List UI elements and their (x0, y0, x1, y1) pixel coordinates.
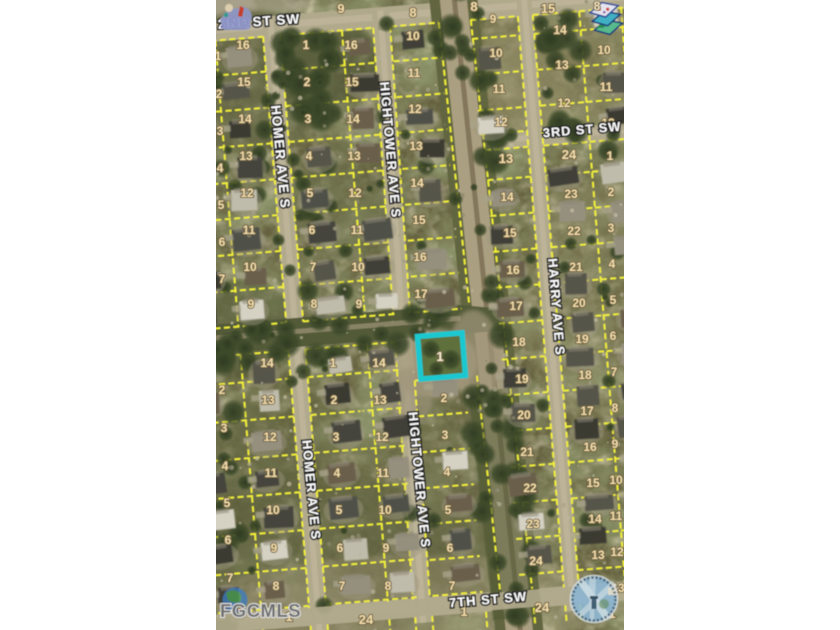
svg-text:11: 11 (377, 466, 390, 480)
svg-text:6: 6 (219, 235, 226, 249)
svg-text:8: 8 (273, 579, 280, 593)
svg-text:9: 9 (612, 437, 619, 451)
svg-text:24: 24 (529, 554, 543, 568)
svg-text:14: 14 (410, 176, 424, 190)
svg-text:3: 3 (217, 124, 224, 138)
svg-text:16: 16 (344, 38, 358, 52)
svg-text:1: 1 (607, 149, 614, 163)
svg-text:1: 1 (330, 356, 337, 370)
svg-text:12: 12 (263, 430, 277, 444)
svg-text:24: 24 (535, 600, 550, 615)
svg-text:9: 9 (383, 541, 390, 555)
svg-text:13: 13 (499, 151, 513, 166)
svg-text:10: 10 (597, 43, 611, 57)
svg-text:11: 11 (600, 80, 613, 94)
svg-text:8: 8 (594, 0, 601, 13)
svg-text:9: 9 (337, 1, 344, 16)
svg-text:7: 7 (227, 571, 234, 585)
svg-text:2: 2 (608, 185, 615, 199)
svg-text:17: 17 (509, 299, 523, 313)
svg-text:12: 12 (408, 102, 422, 116)
svg-text:5: 5 (307, 186, 314, 200)
svg-text:5: 5 (445, 503, 452, 517)
svg-text:15: 15 (237, 75, 251, 89)
svg-text:7: 7 (339, 579, 346, 593)
svg-text:11: 11 (493, 82, 506, 96)
svg-text:22: 22 (567, 224, 581, 238)
svg-text:3: 3 (305, 112, 312, 126)
svg-text:2: 2 (331, 393, 338, 407)
svg-text:12: 12 (375, 430, 389, 444)
svg-text:15: 15 (586, 476, 600, 490)
svg-text:13: 13 (591, 548, 605, 562)
svg-text:6: 6 (309, 223, 316, 237)
svg-text:8: 8 (409, 5, 416, 20)
svg-text:5: 5 (336, 503, 343, 517)
svg-text:17: 17 (580, 404, 594, 418)
svg-text:14: 14 (500, 190, 514, 204)
svg-text:21: 21 (520, 445, 534, 459)
svg-text:7: 7 (611, 365, 618, 379)
svg-text:FGCMLS: FGCMLS (220, 600, 301, 621)
svg-text:4: 4 (217, 161, 224, 175)
svg-text:16: 16 (413, 250, 427, 264)
svg-text:2: 2 (441, 391, 448, 405)
svg-text:13: 13 (373, 393, 387, 407)
svg-text:19: 19 (575, 332, 589, 346)
svg-text:8: 8 (311, 297, 318, 311)
svg-text:10: 10 (489, 46, 503, 60)
svg-text:10: 10 (351, 260, 365, 274)
svg-text:11: 11 (351, 223, 364, 237)
svg-text:12: 12 (240, 186, 254, 200)
svg-text:18: 18 (512, 335, 526, 349)
svg-text:14: 14 (553, 23, 567, 37)
svg-text:20: 20 (572, 296, 586, 310)
svg-text:11: 11 (243, 223, 256, 237)
svg-text:17: 17 (414, 287, 428, 301)
svg-text:13: 13 (239, 149, 253, 163)
svg-text:13: 13 (555, 58, 569, 72)
svg-text:15: 15 (412, 213, 426, 227)
svg-text:22: 22 (523, 481, 537, 495)
svg-text:2: 2 (304, 75, 311, 89)
svg-text:14: 14 (238, 112, 252, 126)
svg-text:1: 1 (436, 349, 443, 364)
svg-text:12: 12 (348, 186, 362, 200)
svg-text:24: 24 (359, 612, 374, 627)
svg-text:1: 1 (303, 38, 310, 52)
svg-text:6: 6 (610, 329, 617, 343)
svg-text:18: 18 (578, 368, 592, 382)
svg-text:16: 16 (506, 263, 520, 277)
svg-text:13: 13 (409, 139, 423, 153)
svg-text:3: 3 (221, 421, 228, 435)
svg-text:6: 6 (337, 541, 344, 555)
svg-text:13: 13 (261, 393, 275, 407)
svg-text:10: 10 (243, 260, 257, 274)
svg-text:10: 10 (378, 503, 392, 517)
svg-text:4: 4 (609, 257, 616, 271)
svg-text:14: 14 (372, 356, 386, 370)
svg-text:12: 12 (610, 545, 624, 559)
svg-text:21: 21 (569, 260, 583, 274)
svg-text:9: 9 (271, 541, 278, 555)
svg-text:20: 20 (517, 408, 531, 422)
svg-text:11: 11 (408, 66, 421, 80)
svg-text:2: 2 (219, 383, 226, 397)
svg-text:23: 23 (526, 517, 540, 531)
svg-text:12: 12 (557, 96, 571, 110)
svg-text:8: 8 (385, 579, 392, 593)
svg-text:7: 7 (449, 579, 456, 593)
svg-text:7: 7 (310, 260, 317, 274)
svg-text:4: 4 (222, 459, 229, 473)
svg-text:23: 23 (564, 187, 578, 201)
svg-text:4: 4 (334, 466, 341, 480)
svg-text:3: 3 (442, 428, 449, 442)
svg-text:15: 15 (503, 226, 517, 240)
svg-text:6: 6 (447, 541, 454, 555)
svg-text:2: 2 (216, 87, 223, 101)
svg-text:8: 8 (612, 401, 619, 415)
svg-text:9: 9 (248, 297, 255, 311)
svg-text:14: 14 (588, 512, 602, 526)
svg-text:10: 10 (406, 29, 420, 43)
svg-text:15: 15 (345, 75, 359, 89)
svg-text:13: 13 (347, 149, 361, 163)
svg-text:11: 11 (265, 466, 278, 480)
svg-text:11: 11 (610, 509, 623, 523)
svg-text:5: 5 (224, 496, 231, 510)
svg-text:5: 5 (218, 198, 225, 212)
svg-text:16: 16 (583, 440, 597, 454)
svg-text:4: 4 (306, 149, 313, 163)
svg-text:19: 19 (515, 372, 529, 386)
svg-text:14: 14 (260, 356, 274, 370)
svg-text:16: 16 (236, 38, 250, 52)
svg-text:3: 3 (333, 430, 340, 444)
svg-text:14: 14 (346, 112, 360, 126)
svg-text:6: 6 (225, 533, 232, 547)
svg-text:4: 4 (444, 465, 451, 479)
svg-text:3: 3 (608, 221, 615, 235)
svg-text:12: 12 (494, 115, 508, 129)
svg-text:5: 5 (610, 293, 617, 307)
svg-text:15: 15 (541, 1, 555, 16)
svg-text:8: 8 (470, 0, 477, 14)
svg-text:7: 7 (219, 272, 226, 286)
svg-text:9: 9 (356, 297, 363, 311)
svg-text:24: 24 (562, 147, 577, 162)
svg-text:10: 10 (609, 473, 623, 487)
svg-text:10: 10 (266, 503, 280, 517)
svg-text:9: 9 (490, 12, 497, 26)
